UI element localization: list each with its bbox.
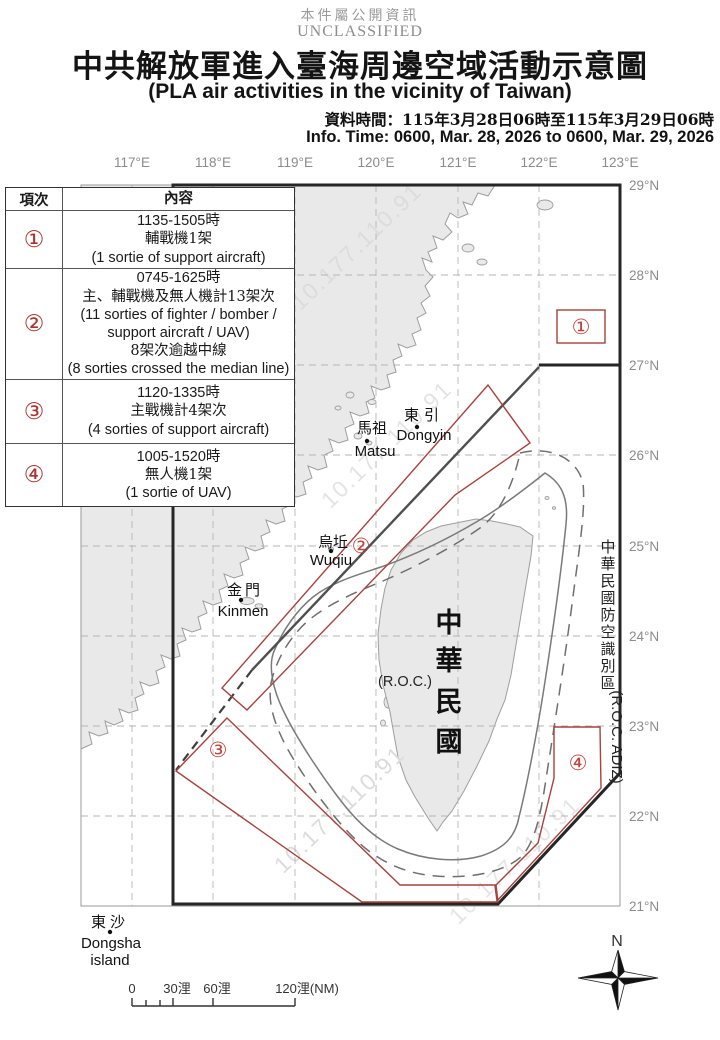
row1-desc-en: (1 sortie of support aircraft) xyxy=(91,249,265,267)
svg-text:21°N: 21°N xyxy=(629,899,659,914)
row2-desc-zh: 主、輔戰機及無人機計13架次 xyxy=(82,288,274,306)
row2-desc-en-1: (11 sorties of fighter / bomber / xyxy=(80,306,276,324)
compass-north-label: N xyxy=(611,933,623,950)
place-wuqiu: 烏坵 Wuqiu xyxy=(310,533,352,569)
roc-label: (R.O.C.) xyxy=(378,674,432,690)
svg-text:24°N: 24°N xyxy=(629,629,659,644)
row2-desc-en-2: support aircraft / UAV) xyxy=(107,324,249,342)
table-row-4: ④ 1005-1520時 無人機1架 (1 sortie of UAV) xyxy=(6,443,294,506)
latitude-labels: 29°N 28°N 27°N 26°N 25°N 24°N 23°N 22°N … xyxy=(629,178,659,914)
row1-desc-zh: 輔戰機1架 xyxy=(145,230,212,248)
svg-text:120浬(NM): 120浬(NM) xyxy=(275,981,339,996)
svg-text:Wuqiu: Wuqiu xyxy=(310,552,352,569)
svg-text:民: 民 xyxy=(436,687,463,718)
svg-text:國: 國 xyxy=(600,589,615,607)
taiwan-vicinity-map: 10.177.110.91 10.177.110.91 10.177.110.9… xyxy=(0,0,720,1040)
table-header-content: 內容 xyxy=(63,188,294,210)
svg-text:Dongsha: Dongsha xyxy=(81,935,142,952)
longitude-labels: 117°E 118°E 119°E 120°E 121°E 122°E 123°… xyxy=(114,155,638,170)
table-header-no: 項次 xyxy=(6,188,63,210)
svg-text:30浬: 30浬 xyxy=(163,981,190,996)
watermark-text: 10.177.110.91 xyxy=(444,791,585,929)
scale-bar-labels: 0 30浬 60浬 120浬(NM) xyxy=(128,981,338,996)
svg-text:國: 國 xyxy=(436,727,463,758)
activity-table: 項次 內容 ① 1135-1505時 輔戰機1架 (1 sortie of su… xyxy=(5,187,295,507)
svg-text:中: 中 xyxy=(436,608,463,639)
row4-number: ④ xyxy=(24,462,45,488)
svg-text:island: island xyxy=(90,952,129,969)
place-dongsha: 東沙 Dongsha island xyxy=(81,913,142,969)
svg-text:121°E: 121°E xyxy=(440,155,477,170)
row1-number: ① xyxy=(24,227,45,253)
svg-text:華: 華 xyxy=(600,555,615,573)
row2-median-en: (8 sorties crossed the median line) xyxy=(68,360,290,378)
svg-text:區: 區 xyxy=(600,674,615,692)
svg-text:防: 防 xyxy=(600,606,615,624)
row2-number: ② xyxy=(24,311,45,337)
watermark-text: 10.177.110.91 xyxy=(269,740,410,878)
marker-3: ③ xyxy=(209,738,228,762)
table-row-2: ② 0745-1625時 主、輔戰機及無人機計13架次 (11 sorties … xyxy=(6,268,294,379)
svg-text:馬祖: 馬祖 xyxy=(357,419,387,437)
svg-text:28°N: 28°N xyxy=(629,268,659,283)
svg-text:識: 識 xyxy=(600,640,615,658)
svg-text:Kinmen: Kinmen xyxy=(218,603,269,620)
svg-text:25°N: 25°N xyxy=(629,539,659,554)
row1-time: 1135-1505時 xyxy=(137,212,220,230)
marker-1: ① xyxy=(572,315,591,339)
row2-time: 0745-1625時 xyxy=(137,269,221,287)
svg-text:空: 空 xyxy=(600,623,615,641)
svg-text:中: 中 xyxy=(600,538,615,556)
svg-text:Matsu: Matsu xyxy=(355,443,396,460)
pla-activity-map-page: 本件屬公開資訊 UNCLASSIFIED 中共解放軍進入臺海周邊空域活動示意圖 … xyxy=(0,0,720,1040)
svg-text:東引: 東引 xyxy=(404,406,444,424)
svg-text:27°N: 27°N xyxy=(629,358,659,373)
svg-text:華: 華 xyxy=(436,646,463,677)
table-row-3: ③ 1120-1335時 主戰機計4架次 (4 sorties of suppo… xyxy=(6,379,294,443)
svg-text:29°N: 29°N xyxy=(629,178,659,193)
svg-text:民: 民 xyxy=(600,572,615,590)
marker-4: ④ xyxy=(569,751,588,775)
row4-desc-zh: 無人機1架 xyxy=(145,466,212,484)
row3-time: 1120-1335時 xyxy=(137,384,220,402)
svg-text:東沙: 東沙 xyxy=(91,913,129,931)
table-row-1: ① 1135-1505時 輔戰機1架 (1 sortie of support … xyxy=(6,210,294,268)
svg-text:119°E: 119°E xyxy=(277,155,313,170)
row3-desc-zh: 主戰機計4架次 xyxy=(130,402,226,420)
svg-text:122°E: 122°E xyxy=(521,155,558,170)
svg-text:117°E: 117°E xyxy=(114,155,150,170)
svg-text:123°E: 123°E xyxy=(602,155,639,170)
scale-bar xyxy=(132,998,295,1006)
row2-median-zh: 8架次逾越中線 xyxy=(130,342,226,360)
svg-text:烏坵: 烏坵 xyxy=(318,533,348,551)
svg-text:別: 別 xyxy=(600,657,615,675)
svg-text:Dongyin: Dongyin xyxy=(396,427,451,444)
row3-desc-en: (4 sorties of support aircraft) xyxy=(88,421,269,439)
dongsha-dot xyxy=(108,930,112,934)
svg-text:23°N: 23°N xyxy=(629,719,659,734)
svg-text:120°E: 120°E xyxy=(358,155,395,170)
row4-time: 1005-1520時 xyxy=(137,448,221,466)
svg-text:26°N: 26°N xyxy=(629,448,659,463)
svg-text:0: 0 xyxy=(128,981,135,996)
svg-text:22°N: 22°N xyxy=(629,809,659,824)
marker-2: ② xyxy=(352,534,371,558)
svg-text:118°E: 118°E xyxy=(195,155,231,170)
row3-number: ③ xyxy=(24,399,45,425)
svg-text:金門: 金門 xyxy=(227,581,263,599)
svg-text:60浬: 60浬 xyxy=(203,981,230,996)
row4-desc-en: (1 sortie of UAV) xyxy=(125,484,231,502)
activity-table-header-row: 項次 內容 xyxy=(6,188,294,210)
adiz-label-en: (R.O.C. ADIZ) xyxy=(608,690,625,783)
kinmen-dot xyxy=(239,598,243,602)
compass-rose: N xyxy=(578,933,658,1010)
